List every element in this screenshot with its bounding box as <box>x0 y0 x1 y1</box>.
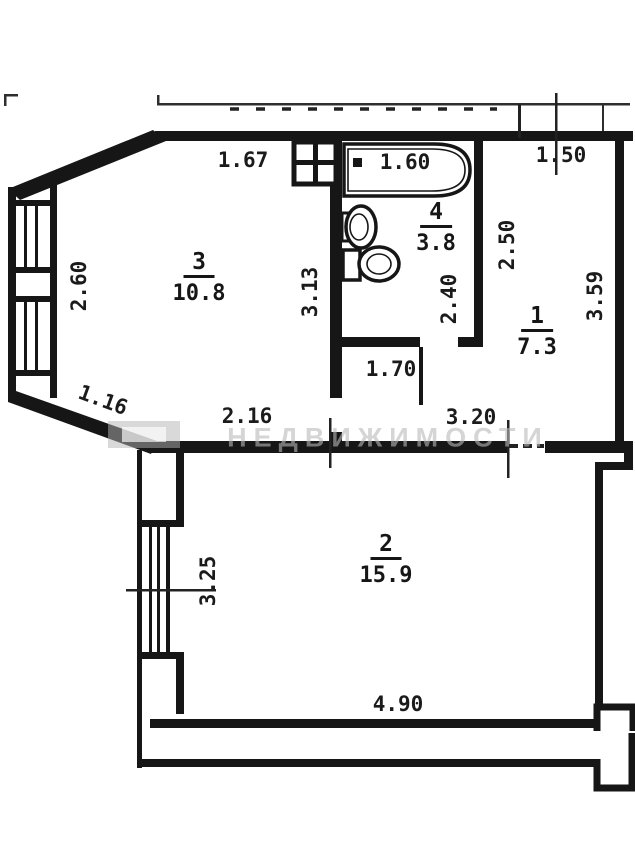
room-2-area: 15.9 <box>360 560 413 587</box>
dim-hall-bottom: 3.20 <box>446 405 497 429</box>
wall-bottom-room2 <box>150 719 597 728</box>
wall-bay-diagonal-top <box>8 130 166 200</box>
wall-bath-bottom-right <box>458 337 483 347</box>
room-1-number: 1 <box>521 304 553 332</box>
landing-edge-hook <box>157 95 160 105</box>
room-1-label: 1 7.3 <box>517 304 557 359</box>
window-sill <box>14 267 53 273</box>
wall-pier-bottom-right-upper <box>597 707 633 731</box>
wall-bath-right <box>474 131 483 347</box>
sink <box>342 206 376 248</box>
dim-hall-left: 2.50 <box>495 220 519 271</box>
dim-tick <box>518 104 521 138</box>
dim-bath-height: 2.40 <box>437 274 461 325</box>
dim-room2-bottom: 4.90 <box>373 692 424 716</box>
vent-shaft <box>294 142 336 184</box>
toilet <box>343 247 399 281</box>
window-sill <box>137 520 184 527</box>
wall-right-room2 <box>595 462 603 710</box>
wall-bay-inner-left <box>50 176 57 398</box>
wall-bottom-outer <box>140 759 597 767</box>
window-frame <box>24 206 27 267</box>
dim-hall-right: 3.59 <box>583 271 607 322</box>
window-sill <box>14 296 53 302</box>
bath-door-leaf <box>419 347 423 405</box>
wall-left-inner-room2 <box>176 450 184 523</box>
window-sill <box>137 652 184 659</box>
watermark-text: НЕДВИЖИМОСТИ <box>227 423 549 454</box>
watermark-logo <box>108 421 180 448</box>
dim-room3-left: 2.60 <box>67 261 91 312</box>
room-4-number: 4 <box>420 200 452 228</box>
window-frame <box>35 206 38 267</box>
wall-pier-bottom-right-lower <box>597 733 632 788</box>
landing-edge-line <box>157 103 630 106</box>
wall-left-inner-room2 <box>176 652 184 714</box>
room-2-number: 2 <box>370 532 402 560</box>
floor-plan: НЕДВИЖИМОСТИ <box>0 0 635 849</box>
window-sill <box>14 200 53 206</box>
room-1-area: 7.3 <box>517 332 557 359</box>
room-3-label: 3 10.8 <box>173 250 226 305</box>
hall-face-extension <box>602 104 604 132</box>
wall-top <box>155 131 633 141</box>
room-4-area: 3.8 <box>416 228 456 255</box>
room-3-area: 10.8 <box>173 278 226 305</box>
room-3-number: 3 <box>183 250 215 278</box>
dim-corridor: 1.70 <box>366 357 417 381</box>
corner-mark-v <box>4 94 7 106</box>
wall-bay-outer-left <box>8 187 16 399</box>
dim-bathtub: 1.60 <box>380 150 431 174</box>
dim-hall-top: 1.50 <box>536 143 587 167</box>
dim-room3-bottom: 2.16 <box>222 404 273 428</box>
room-2-label: 2 15.9 <box>360 532 413 587</box>
bathtub-drain <box>353 158 362 167</box>
window-frame <box>35 302 38 370</box>
dim-room3-right: 3.13 <box>298 267 322 318</box>
wall-bath-bottom-left <box>330 337 420 347</box>
window-sill <box>14 370 53 376</box>
wall-left-outer-room2 <box>137 450 142 768</box>
wall-right-upper <box>615 131 624 453</box>
dim-room3-top: 1.67 <box>218 148 269 172</box>
room-4-label: 4 3.8 <box>416 200 456 255</box>
window-frame <box>24 302 27 370</box>
dim-room2-left: 3.25 <box>196 556 220 607</box>
